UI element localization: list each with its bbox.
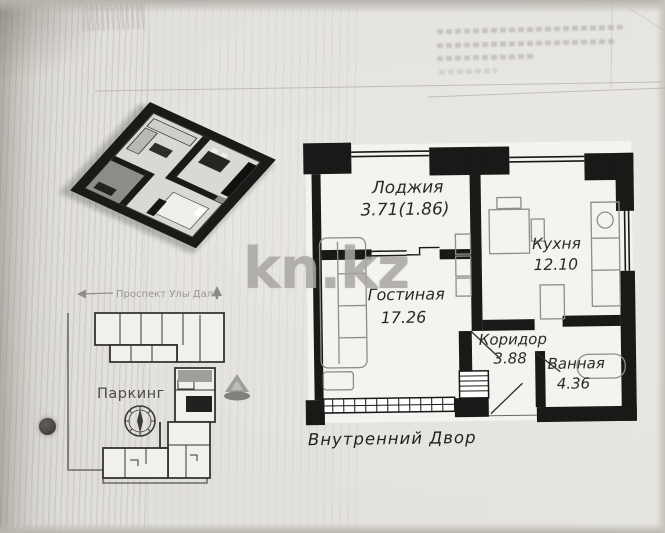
isometric-3d-view bbox=[59, 99, 277, 254]
room-label-loggia: Лоджия bbox=[371, 177, 444, 198]
room-area-kitchen: 12.10 bbox=[533, 255, 578, 274]
shaded-unit bbox=[178, 370, 212, 382]
shaft-ladder bbox=[459, 371, 488, 398]
kn-kz-watermark: kn.kz bbox=[243, 236, 409, 302]
room-area-corridor: 3.88 bbox=[493, 349, 527, 367]
room-area-living: 17.26 bbox=[380, 308, 426, 328]
room-label-corridor: Коридор bbox=[479, 330, 547, 349]
parking-plan-drawing: Проспект Улы Дала bbox=[68, 286, 250, 483]
room-label-bathroom: Ванная bbox=[547, 354, 605, 373]
room-label-kitchen: Кухня bbox=[532, 234, 581, 253]
room-area-loggia: 3.71(1.86) bbox=[360, 199, 449, 220]
paper-fold-lines bbox=[95, 2, 665, 97]
compass-icon bbox=[125, 406, 155, 436]
parking-label: Паркинг bbox=[97, 386, 165, 402]
street-arrow-icon bbox=[77, 290, 113, 299]
highlighted-unit bbox=[186, 396, 212, 412]
living-room-window bbox=[324, 397, 455, 413]
photographed-floorplan-page: Лоджия 3.71(1.86) Кухня 12.10 Гостиная 1… bbox=[0, 0, 665, 533]
developer-stamp-icon bbox=[224, 374, 250, 401]
room-area-bathroom: 4.36 bbox=[557, 374, 591, 392]
street-label: Проспект Улы Дала bbox=[116, 289, 219, 300]
courtyard-label: Внутренний Двор bbox=[308, 428, 477, 449]
